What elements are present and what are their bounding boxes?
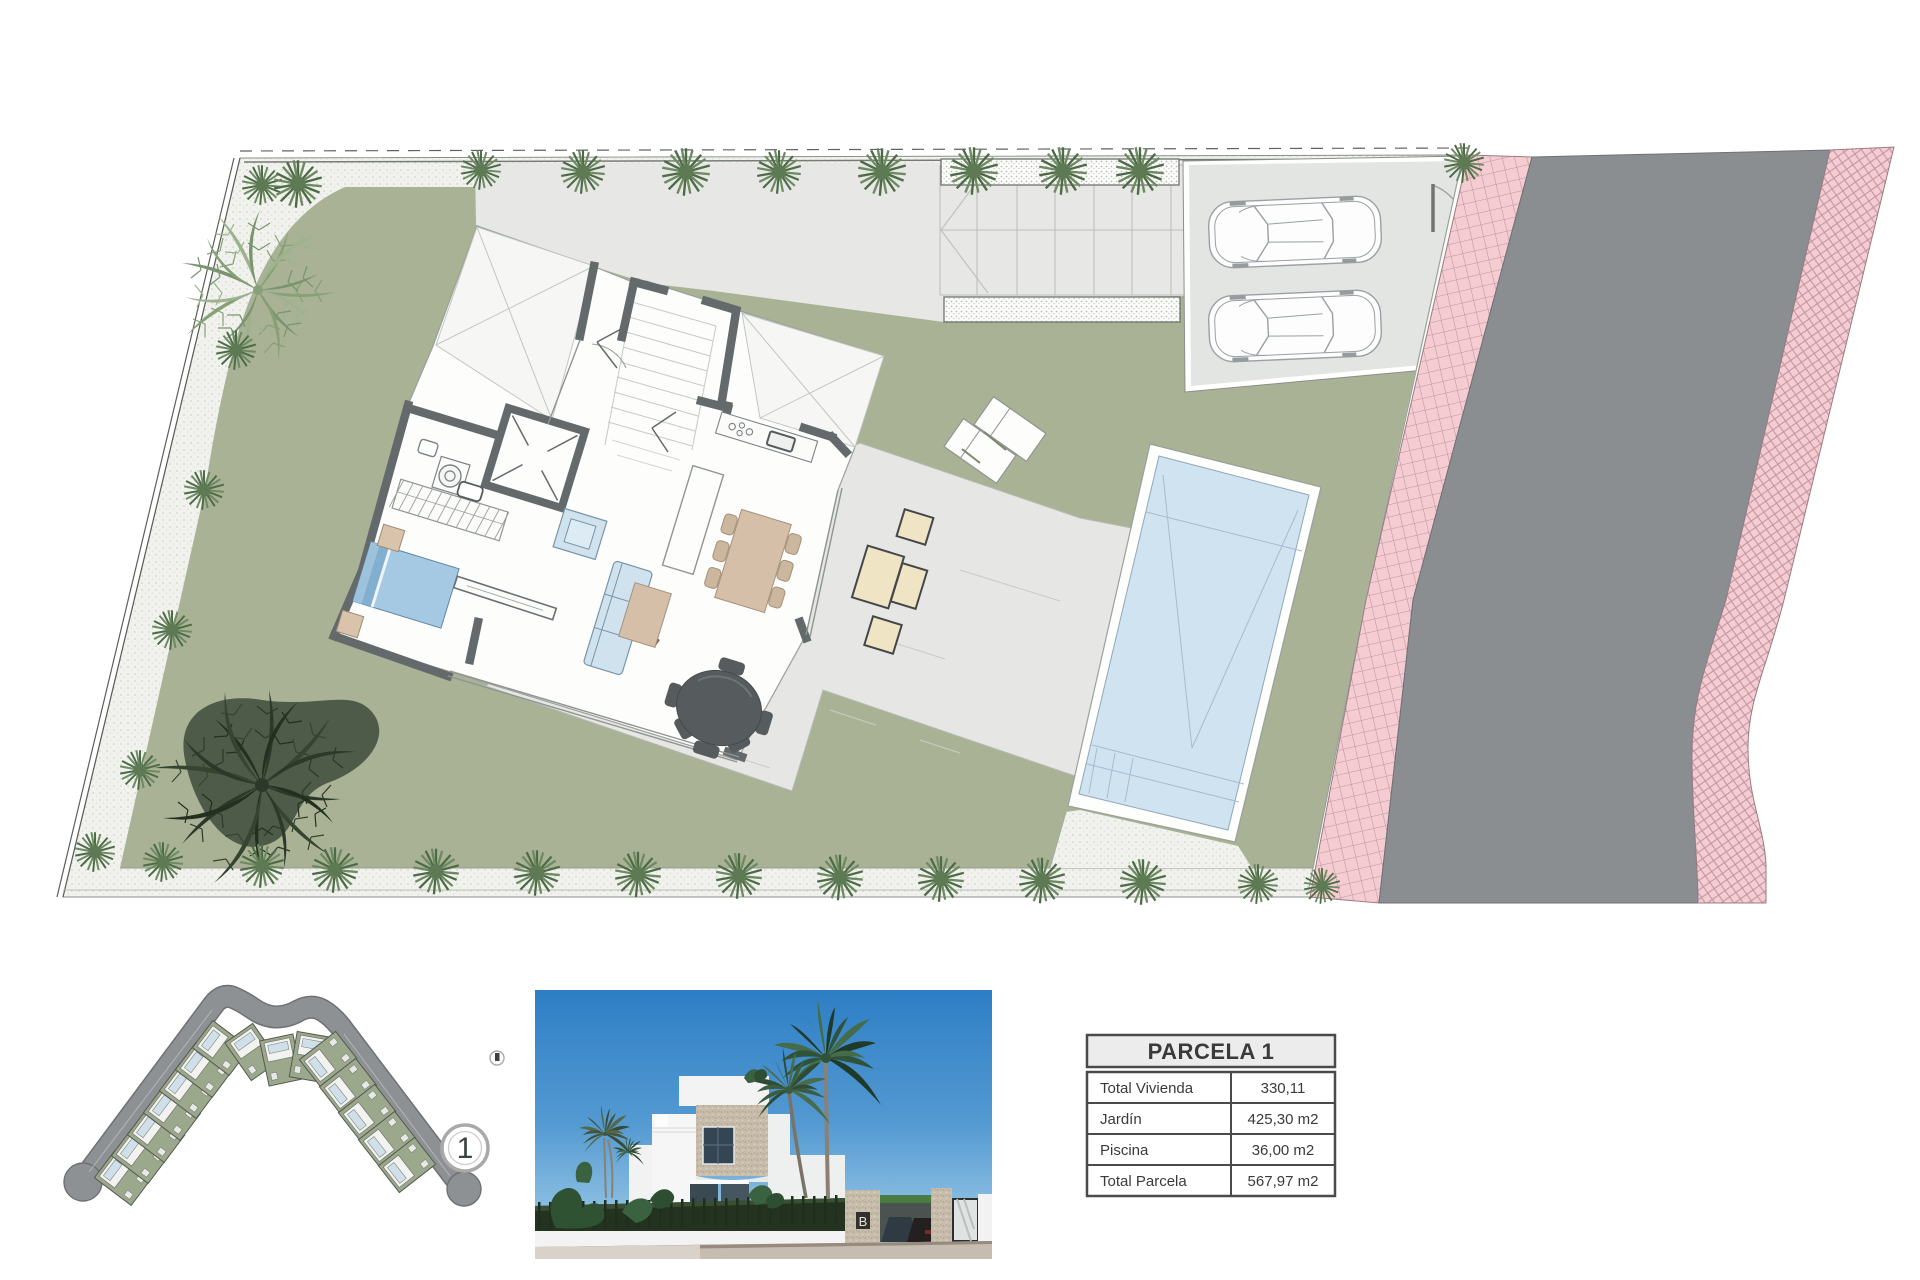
svg-text:Total Vivienda: Total Vivienda: [1100, 1080, 1194, 1097]
svg-text:567,97 m2: 567,97 m2: [1248, 1173, 1319, 1190]
svg-text:1: 1: [457, 1132, 474, 1165]
svg-text:B: B: [859, 1214, 868, 1229]
svg-text:330,11: 330,11: [1261, 1080, 1306, 1097]
svg-text:425,30 m2: 425,30 m2: [1248, 1111, 1319, 1128]
svg-text:PARCELA 1: PARCELA 1: [1148, 1039, 1275, 1064]
svg-text:Jardín: Jardín: [1100, 1111, 1142, 1128]
svg-text:Piscina: Piscina: [1100, 1142, 1149, 1159]
svg-text:36,00 m2: 36,00 m2: [1252, 1142, 1315, 1159]
svg-text:Total Parcela: Total Parcela: [1100, 1173, 1187, 1190]
